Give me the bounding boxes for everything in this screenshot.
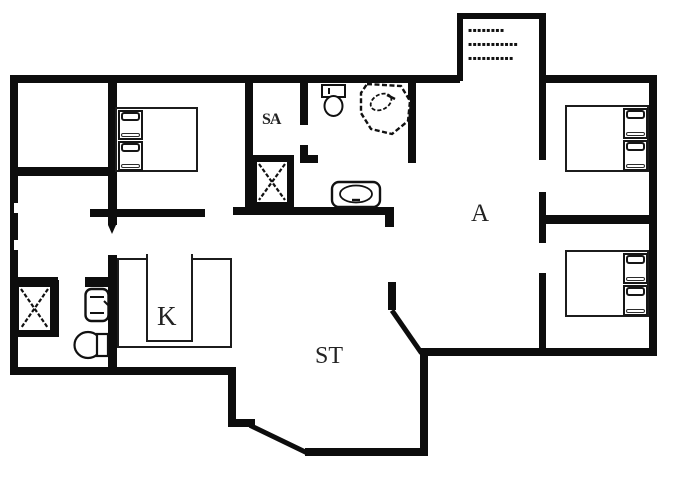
label-sauna: SA — [262, 111, 280, 129]
wall-sauna-right — [300, 83, 308, 125]
wall-diagonal-southwest — [249, 423, 310, 456]
toilet-wc-icon — [73, 330, 111, 360]
wall-bottom-middle — [305, 448, 428, 456]
porch-note-line: ▪▪▪▪▪▪▪▪▪▪▪ — [468, 38, 538, 52]
wall-bedroom1-bottom — [90, 209, 205, 217]
floor-plan: SA K ST A ▪▪▪▪▪▪▪▪ ▪▪▪▪▪▪▪▪▪▪▪ ▪▪▪▪▪▪▪▪▪… — [0, 0, 700, 500]
bed-topright-foot-2 — [626, 164, 645, 168]
wall-bedrooms-west-low — [539, 273, 546, 352]
wall-bedrooms-divider — [546, 215, 657, 224]
label-living-room: ST — [315, 343, 343, 370]
wall-step-vertical — [228, 367, 236, 426]
porch-note: ▪▪▪▪▪▪▪▪ ▪▪▪▪▪▪▪▪▪▪▪ ▪▪▪▪▪▪▪▪▪▪ — [468, 24, 538, 66]
bed-bottomright-pillow-2 — [626, 287, 645, 296]
wall-topleft-room-divider — [13, 167, 115, 176]
wall-top-right — [539, 75, 657, 83]
bed-bottomright-pillow-1 — [626, 255, 645, 264]
bed-left-foot-1 — [121, 133, 140, 137]
porch-note-line: ▪▪▪▪▪▪▪▪ — [468, 24, 538, 38]
wall-top-left — [10, 75, 460, 83]
window-notch-1 — [14, 203, 18, 213]
bed-topright-pillow-1 — [626, 110, 645, 119]
bed-bottomright-foot-2 — [626, 309, 645, 313]
window-notch-2 — [14, 240, 18, 250]
wall-bathroom-bottom-stub — [385, 207, 394, 227]
porch-note-line: ▪▪▪▪▪▪▪▪▪▪ — [468, 52, 538, 66]
shower-bathroom-x-icon — [257, 162, 287, 202]
label-room-a: A — [471, 200, 489, 228]
toilet-bathroom-icon — [320, 84, 348, 118]
washbasin-wc-icon — [84, 287, 111, 323]
bed-left-pillow-1 — [121, 112, 140, 121]
door-tip — [108, 225, 116, 234]
wall-porch-top — [457, 13, 545, 19]
wall-bedrooms-west-mid — [539, 192, 546, 243]
wall-diagonal-living — [390, 309, 424, 355]
corner-bathtub-icon — [359, 83, 413, 137]
wall-living-east-vertical — [420, 352, 428, 456]
wall-sauna-corner-h — [300, 155, 318, 163]
wall-porch-left — [457, 13, 463, 81]
bed-left-pillow-2 — [121, 143, 140, 152]
label-kitchen: K — [157, 301, 177, 332]
washbasin-bathroom-icon — [331, 181, 381, 209]
shower-wc-x-icon — [19, 287, 50, 330]
bed-left-foot-2 — [121, 164, 140, 168]
bed-bottomright-foot-1 — [626, 277, 645, 281]
bed-topright-foot-1 — [626, 132, 645, 136]
wall-bottom-left — [10, 367, 236, 375]
wall-living-stub — [388, 282, 396, 310]
bed-topright-pillow-2 — [626, 142, 645, 151]
wall-porch-right — [539, 13, 546, 160]
